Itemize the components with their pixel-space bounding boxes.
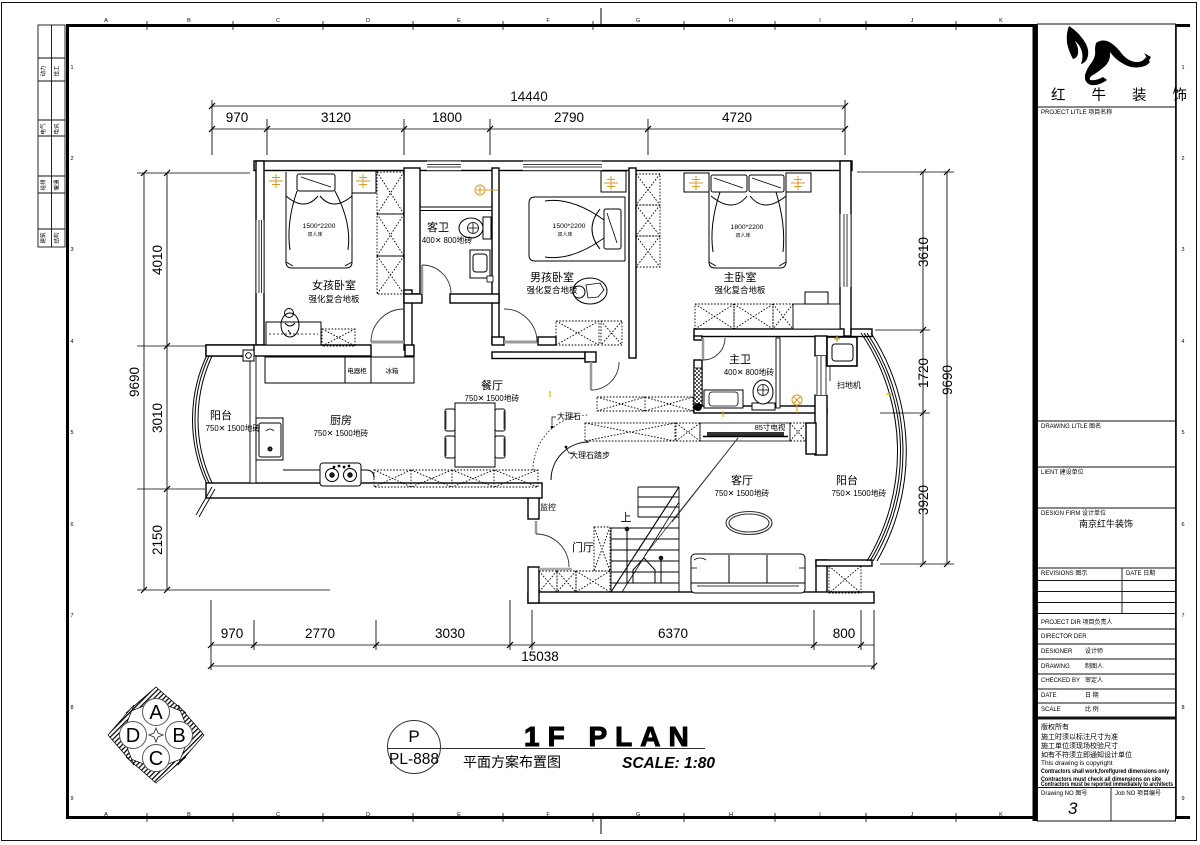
svg-text:A: A	[104, 812, 108, 818]
svg-text:3120: 3120	[321, 110, 351, 125]
svg-text:A: A	[149, 702, 163, 724]
svg-text:PROJECT DIR 项目负责人: PROJECT DIR 项目负责人	[1041, 618, 1113, 626]
svg-text:J: J	[911, 18, 914, 24]
svg-text:DESIGN FIRM 设计单位: DESIGN FIRM 设计单位	[1041, 509, 1106, 517]
svg-text:SCALE: SCALE	[1041, 707, 1061, 713]
svg-text:给排: 给排	[39, 179, 47, 191]
svg-text:2: 2	[1181, 156, 1184, 162]
svg-text:D: D	[126, 725, 140, 747]
svg-text:P: P	[408, 727, 419, 746]
svg-text:给工: 给工	[53, 65, 61, 77]
svg-text:监控: 监控	[540, 502, 556, 512]
svg-text:H: H	[729, 812, 733, 818]
svg-text:3920: 3920	[916, 485, 931, 515]
svg-text:PROJECT LITLE 项目名称: PROJECT LITLE 项目名称	[1041, 108, 1112, 116]
svg-text:冰箱: 冰箱	[386, 366, 400, 375]
svg-text:9690: 9690	[940, 365, 955, 395]
svg-text:4: 4	[70, 339, 73, 345]
svg-text:DIRECTOR DER: DIRECTOR DER	[1041, 634, 1087, 640]
svg-text:3: 3	[1068, 799, 1078, 818]
svg-text:2790: 2790	[554, 110, 584, 125]
svg-text:G: G	[636, 18, 640, 24]
svg-text:9: 9	[1181, 796, 1184, 802]
svg-text:客卫: 客卫	[427, 220, 449, 234]
svg-text:K: K	[999, 812, 1003, 818]
svg-text:主卧室: 主卧室	[724, 270, 757, 284]
svg-text:日 期: 日 期	[1085, 691, 1099, 699]
svg-text:14440: 14440	[510, 89, 548, 104]
svg-text:G: G	[636, 812, 640, 818]
svg-text:D: D	[366, 18, 370, 24]
svg-text:C: C	[276, 18, 280, 24]
svg-text:LIENT 建设单位: LIENT 建设单位	[1041, 468, 1084, 476]
svg-text:5: 5	[1181, 430, 1184, 436]
svg-text:DATE 日期: DATE 日期	[1126, 569, 1155, 577]
svg-text:主卫: 主卫	[729, 353, 751, 366]
svg-text:750✕ 1500地砖: 750✕ 1500地砖	[465, 393, 520, 403]
svg-text:1F PLAN: 1F PLAN	[524, 721, 697, 752]
svg-text:DATE: DATE	[1041, 693, 1057, 699]
svg-text:1500*2200: 1500*2200	[553, 223, 586, 230]
svg-text:2: 2	[70, 156, 73, 162]
svg-text:双人床: 双人床	[307, 231, 322, 238]
svg-text:This drawing is copyright: This drawing is copyright	[1041, 760, 1113, 767]
svg-text:结构: 结构	[53, 232, 61, 244]
svg-text:K: K	[999, 18, 1003, 24]
svg-text:REVISIONS 图示: REVISIONS 图示	[1041, 570, 1087, 577]
svg-text:85寸电视: 85寸电视	[755, 422, 786, 432]
svg-text:6: 6	[1181, 522, 1184, 528]
svg-text:大理石: 大理石	[557, 411, 581, 421]
svg-text:电讯: 电讯	[53, 123, 61, 135]
svg-text:平面方案布置图: 平面方案布置图	[463, 754, 561, 770]
svg-text:红牛装饰: 红牛装饰	[1051, 87, 1200, 104]
svg-text:制图人: 制图人	[1085, 662, 1103, 670]
svg-text:强化复合地板: 强化复合地板	[714, 285, 766, 295]
svg-text:E: E	[457, 18, 461, 24]
svg-text:Drawing NO 图号: Drawing NO 图号	[1041, 790, 1087, 797]
svg-text:6370: 6370	[658, 626, 688, 641]
svg-text:1: 1	[70, 65, 73, 71]
svg-text:750✕ 1500地砖: 750✕ 1500地砖	[715, 488, 770, 498]
svg-text:门厅: 门厅	[572, 540, 594, 554]
svg-text:15038: 15038	[521, 649, 559, 664]
svg-text:9690: 9690	[127, 367, 142, 397]
svg-text:2150: 2150	[150, 525, 165, 555]
svg-text:餐厅: 餐厅	[481, 378, 503, 392]
svg-text:Job NO 项目编号: Job NO 项目编号	[1115, 789, 1161, 797]
svg-text:施工时须以标注尺寸为准: 施工时须以标注尺寸为准	[1041, 732, 1118, 741]
svg-text:电器柜: 电器柜	[347, 366, 367, 375]
svg-text:CHECKED BY: CHECKED BY	[1041, 678, 1080, 684]
svg-text:3030: 3030	[435, 626, 465, 641]
svg-text:E: E	[457, 812, 461, 818]
svg-text:南京红牛装饰: 南京红牛装饰	[1079, 518, 1133, 529]
svg-text:9: 9	[70, 796, 73, 802]
svg-text:大理石踏步: 大理石踏步	[570, 450, 610, 460]
svg-text:版权所有: 版权所有	[1041, 722, 1069, 731]
svg-text:800: 800	[833, 626, 856, 641]
svg-text:B: B	[172, 725, 185, 747]
svg-text:400✕ 800地砖: 400✕ 800地砖	[724, 367, 775, 377]
svg-text:DRAWING LITLE 图名: DRAWING LITLE 图名	[1041, 422, 1101, 430]
svg-text:1800: 1800	[432, 110, 462, 125]
svg-text:PL-888: PL-888	[389, 751, 439, 768]
svg-text:3: 3	[70, 247, 73, 253]
svg-text:厨房: 厨房	[330, 414, 352, 427]
svg-text:动力: 动力	[39, 65, 47, 76]
svg-text:6: 6	[70, 522, 73, 528]
svg-text:8: 8	[1181, 705, 1184, 711]
svg-text:7: 7	[1181, 613, 1184, 619]
svg-text:7: 7	[70, 613, 73, 619]
svg-text:1720: 1720	[916, 358, 931, 388]
svg-text:如有不符须立即通知设计单位: 如有不符须立即通知设计单位	[1041, 750, 1132, 759]
svg-text:电气: 电气	[39, 123, 47, 135]
svg-text:B: B	[187, 812, 191, 818]
svg-text:970: 970	[226, 110, 249, 125]
svg-text:DESIGNER: DESIGNER	[1041, 649, 1073, 655]
svg-text:设计师: 设计师	[1085, 647, 1103, 655]
svg-text:C: C	[149, 748, 163, 770]
svg-text:阳台: 阳台	[210, 408, 232, 422]
svg-text:3010: 3010	[150, 403, 165, 433]
svg-text:5: 5	[70, 430, 73, 436]
svg-text:男孩卧室: 男孩卧室	[530, 270, 574, 284]
svg-text:Contractors must be reported i: Contractors must be reported immediately…	[1041, 782, 1174, 788]
svg-text:Contractors shall work,foreflg: Contractors shall work,foreflgured dimen…	[1041, 769, 1170, 775]
svg-text:暖通: 暖通	[53, 179, 61, 191]
svg-text:女孩卧室: 女孩卧室	[312, 278, 356, 292]
svg-text:750✕ 1500地砖: 750✕ 1500地砖	[314, 428, 369, 438]
svg-text:400✕ 800地砖: 400✕ 800地砖	[422, 235, 473, 245]
svg-text:比 例: 比 例	[1085, 705, 1099, 713]
svg-text:建筑: 建筑	[39, 232, 47, 244]
svg-text:审定人: 审定人	[1085, 676, 1103, 684]
svg-text:1800*2200: 1800*2200	[731, 224, 764, 231]
svg-text:4010: 4010	[150, 245, 165, 275]
svg-text:A: A	[104, 18, 108, 24]
svg-text:3: 3	[1181, 247, 1184, 253]
svg-text:750✕ 1500地砖: 750✕ 1500地砖	[206, 423, 261, 433]
svg-text:B: B	[187, 18, 191, 24]
svg-text:4720: 4720	[722, 110, 752, 125]
svg-text:C: C	[276, 812, 280, 818]
svg-text:1500*2200: 1500*2200	[303, 223, 336, 230]
svg-text:上: 上	[621, 511, 632, 524]
svg-text:客厅: 客厅	[731, 473, 753, 487]
svg-text:阳台: 阳台	[836, 473, 858, 487]
svg-text:DRAWING: DRAWING	[1041, 664, 1070, 670]
svg-text:1: 1	[1181, 65, 1184, 71]
svg-text:SCALE: 1:80: SCALE: 1:80	[622, 755, 715, 772]
svg-text:双人床: 双人床	[557, 231, 572, 238]
svg-text:H: H	[729, 18, 733, 24]
svg-text:4: 4	[1181, 339, 1184, 345]
svg-text:强化复合地板: 强化复合地板	[526, 285, 578, 295]
svg-text:8: 8	[70, 705, 73, 711]
svg-text:J: J	[911, 812, 914, 818]
svg-text:750✕ 1500地砖: 750✕ 1500地砖	[832, 488, 887, 498]
svg-text:施工单位须现场校验尺寸: 施工单位须现场校验尺寸	[1041, 741, 1118, 750]
svg-text:2770: 2770	[305, 626, 335, 641]
svg-text:扫地机: 扫地机	[837, 380, 861, 390]
svg-text:强化复合地板: 强化复合地板	[308, 294, 360, 304]
svg-text:3610: 3610	[916, 237, 931, 267]
svg-text:双人床: 双人床	[735, 232, 750, 239]
svg-text:D: D	[366, 812, 370, 818]
svg-text:970: 970	[221, 626, 244, 641]
